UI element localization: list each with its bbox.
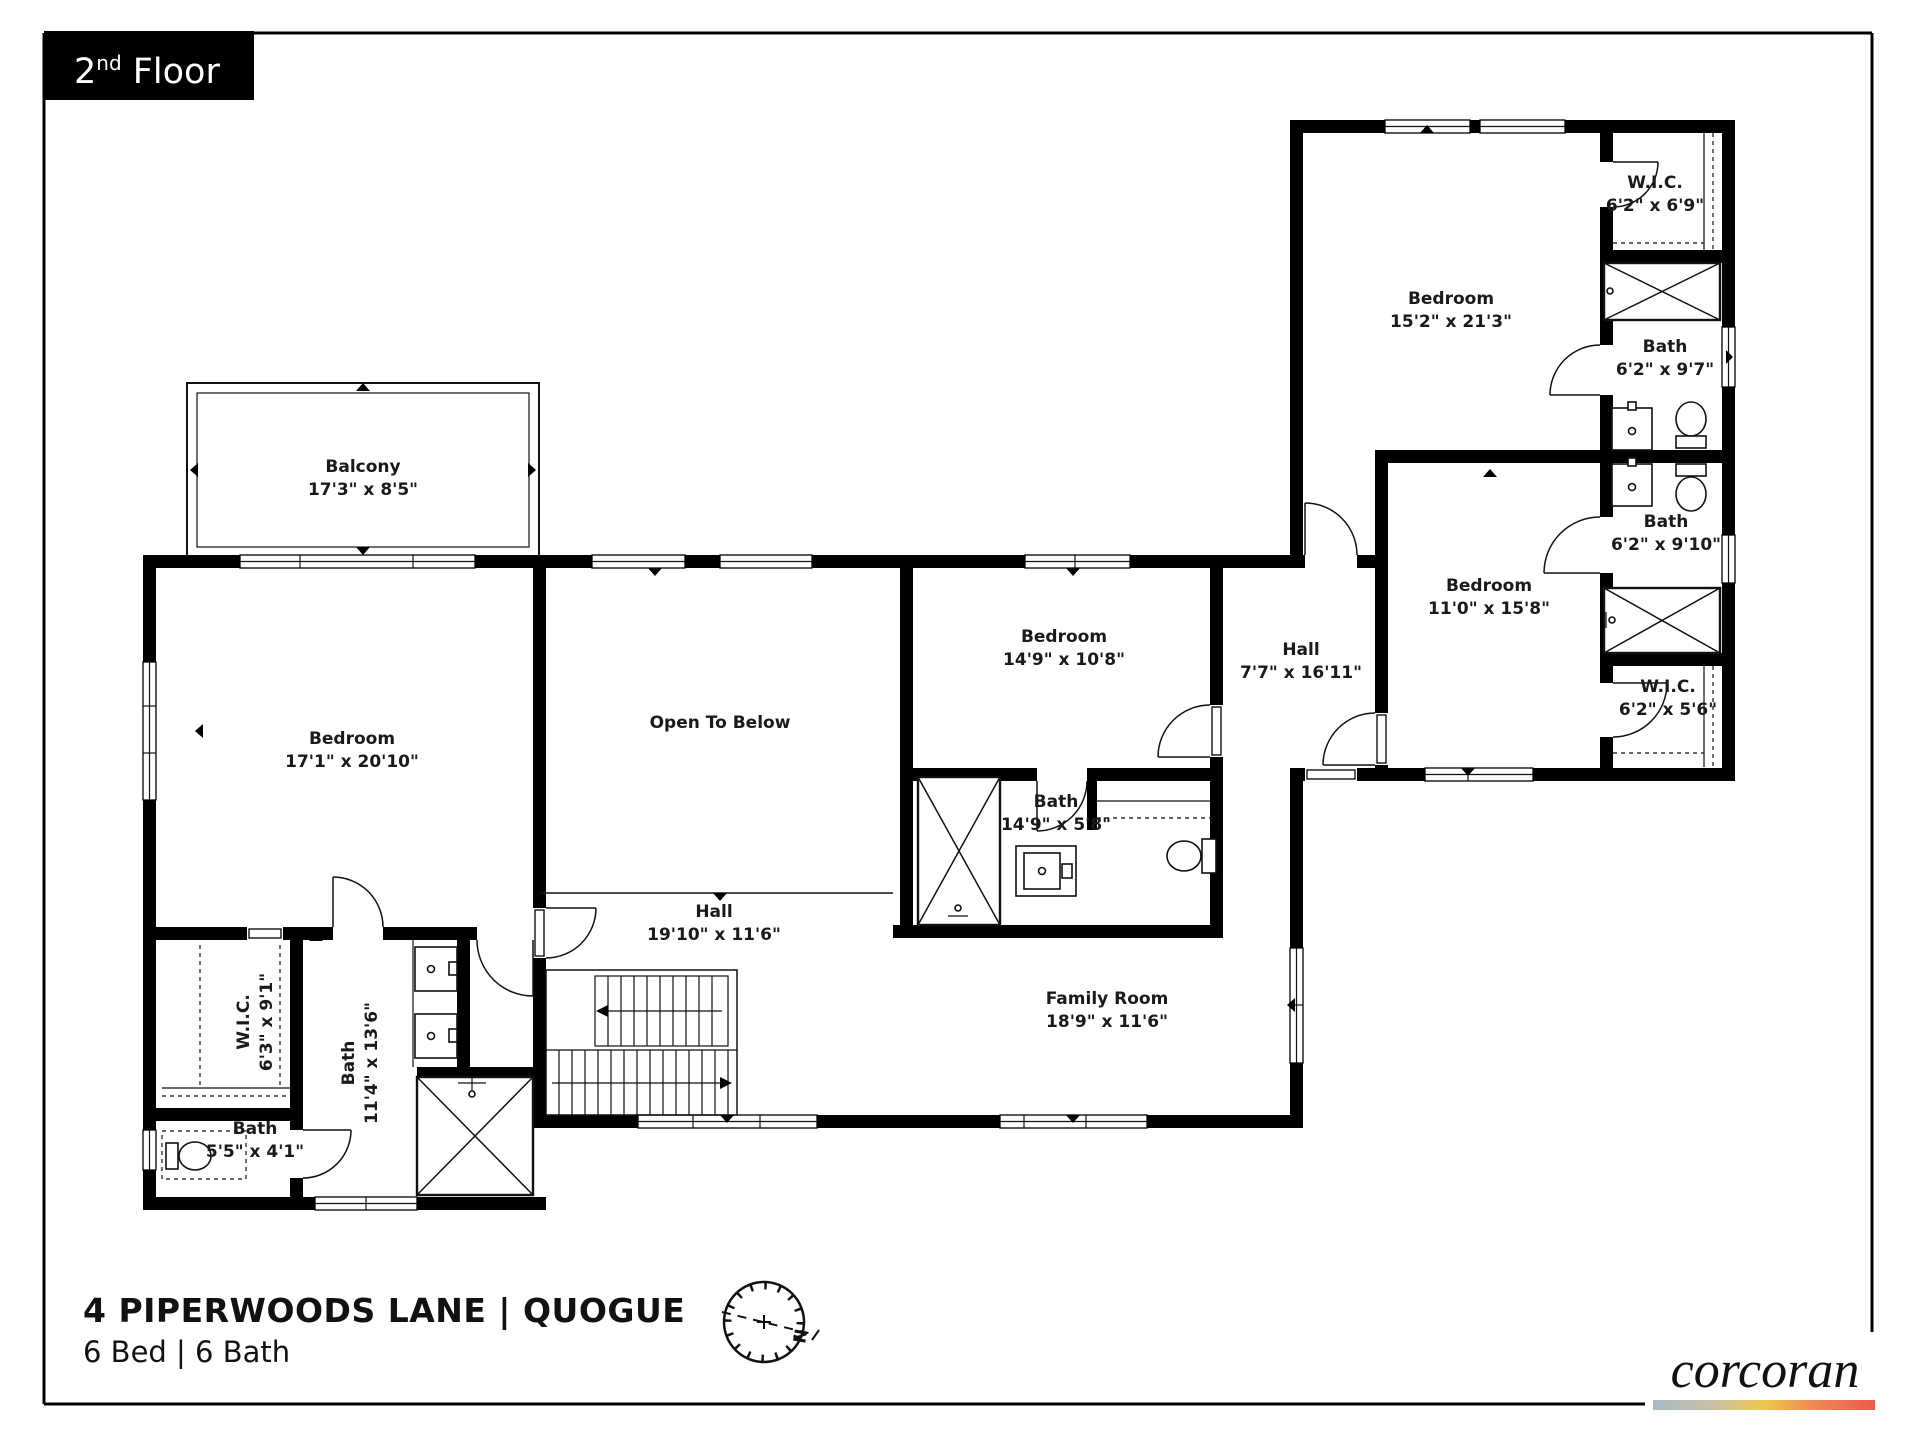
address-line1: 4 PIPERWOODS LANE | QUOGUE <box>83 1291 685 1330</box>
svg-text:17'3" x 8'5": 17'3" x 8'5" <box>308 480 418 500</box>
shower-icon <box>918 777 1000 925</box>
compass-icon: N <box>722 1282 819 1362</box>
room-label-bedroom-left: Bedroom17'1" x 20'10" <box>285 729 419 772</box>
room-label-bath-bottomleft: Bath11'4" x 13'6" <box>339 1002 382 1124</box>
floorplan: Balcony17'3" x 8'5" Bedroom17'1" x 20'10… <box>143 120 1735 1210</box>
svg-text:Bath: Bath <box>339 1041 359 1086</box>
svg-text:5'5" x 4'1": 5'5" x 4'1" <box>206 1142 304 1162</box>
svg-text:W.I.C.: W.I.C. <box>1627 173 1683 193</box>
svg-text:Bath: Bath <box>1034 792 1079 812</box>
room-label-wic-bottomleft: W.I.C.6'3" x 9'1" <box>234 973 277 1071</box>
svg-text:11'0" x 15'8": 11'0" x 15'8" <box>1428 599 1550 619</box>
sink-icon <box>415 947 457 991</box>
floor-label: 2nd Floor <box>44 31 254 100</box>
svg-text:19'10" x 11'6": 19'10" x 11'6" <box>647 925 781 945</box>
room-label-bath-97: Bath6'2" x 9'7" <box>1616 337 1714 380</box>
svg-text:14'9" x 10'8": 14'9" x 10'8" <box>1003 650 1125 670</box>
svg-text:Open To Below: Open To Below <box>650 713 791 733</box>
svg-text:Bedroom: Bedroom <box>1446 576 1532 596</box>
brand-name: corcoran <box>1671 1342 1860 1399</box>
svg-text:6'2" x 9'7": 6'2" x 9'7" <box>1616 360 1714 380</box>
svg-text:Bedroom: Bedroom <box>1021 627 1107 647</box>
room-label-family-room: Family Room18'9" x 11'6" <box>1046 989 1169 1032</box>
toilet-icon <box>1676 464 1706 511</box>
svg-text:Hall: Hall <box>695 902 732 922</box>
svg-text:Bath: Bath <box>1643 337 1688 357</box>
svg-text:14'9" x 5'8": 14'9" x 5'8" <box>1001 815 1111 835</box>
svg-text:Hall: Hall <box>1282 640 1319 660</box>
sink-icon <box>1016 846 1076 896</box>
room-label-bath-910: Bath6'2" x 9'10" <box>1611 512 1721 555</box>
svg-text:W.I.C.: W.I.C. <box>234 994 254 1050</box>
sink-icon <box>1612 402 1652 450</box>
svg-text:W.I.C.: W.I.C. <box>1640 677 1696 697</box>
room-label-hall-upper: Hall7'7" x 16'11" <box>1240 640 1362 683</box>
svg-text:Bath: Bath <box>233 1119 278 1139</box>
floorplan-page: 2nd Floor <box>0 0 1920 1440</box>
svg-text:Bedroom: Bedroom <box>1408 289 1494 309</box>
svg-text:7'7" x 16'11": 7'7" x 16'11" <box>1240 663 1362 683</box>
room-label-wic-topright: W.I.C.6'2" x 6'9" <box>1606 173 1704 216</box>
floor-label-text: 2nd Floor <box>74 51 220 92</box>
address-block: 4 PIPERWOODS LANE | QUOGUE 6 Bed | 6 Bat… <box>83 1291 685 1369</box>
brand-gradient-bar <box>1653 1400 1875 1410</box>
svg-text:15'2" x 21'3": 15'2" x 21'3" <box>1390 312 1512 332</box>
svg-text:6'2" x 9'10": 6'2" x 9'10" <box>1611 535 1721 555</box>
staircase <box>546 970 737 1115</box>
svg-text:Family Room: Family Room <box>1046 989 1169 1009</box>
svg-text:Balcony: Balcony <box>325 457 400 477</box>
brand-logo: corcoran <box>1653 1342 1875 1410</box>
room-label-open-to-below: Open To Below <box>650 713 791 733</box>
toilet-icon <box>1167 839 1216 873</box>
svg-text:6'3" x 9'1": 6'3" x 9'1" <box>257 973 277 1071</box>
shower-icon <box>1604 588 1720 653</box>
sink-icon <box>415 1014 457 1058</box>
shower-icon <box>417 1077 533 1195</box>
bathtub-icon <box>1604 263 1720 320</box>
svg-text:6'2" x 5'6": 6'2" x 5'6" <box>1619 700 1717 720</box>
svg-text:6'2" x 6'9": 6'2" x 6'9" <box>1606 196 1704 216</box>
room-label-bedroom-right: Bedroom11'0" x 15'8" <box>1428 576 1550 619</box>
svg-text:18'9" x 11'6": 18'9" x 11'6" <box>1046 1012 1168 1032</box>
toilet-icon <box>1676 402 1706 448</box>
room-label-bedroom-topright: Bedroom15'2" x 21'3" <box>1390 289 1512 332</box>
room-label-balcony: Balcony17'3" x 8'5" <box>308 457 418 500</box>
room-label-hall-lower: Hall19'10" x 11'6" <box>647 902 781 945</box>
svg-text:11'4" x 13'6": 11'4" x 13'6" <box>362 1002 382 1124</box>
compass-north-label: N <box>788 1327 810 1344</box>
floorplan-svg: 2nd Floor <box>0 0 1920 1440</box>
sink-icon <box>1612 458 1652 506</box>
svg-text:17'1" x 20'10": 17'1" x 20'10" <box>285 752 419 772</box>
svg-text:Bedroom: Bedroom <box>309 729 395 749</box>
svg-text:Bath: Bath <box>1644 512 1689 532</box>
room-label-bedroom-center: Bedroom14'9" x 10'8" <box>1003 627 1125 670</box>
address-line2: 6 Bed | 6 Bath <box>83 1335 290 1369</box>
